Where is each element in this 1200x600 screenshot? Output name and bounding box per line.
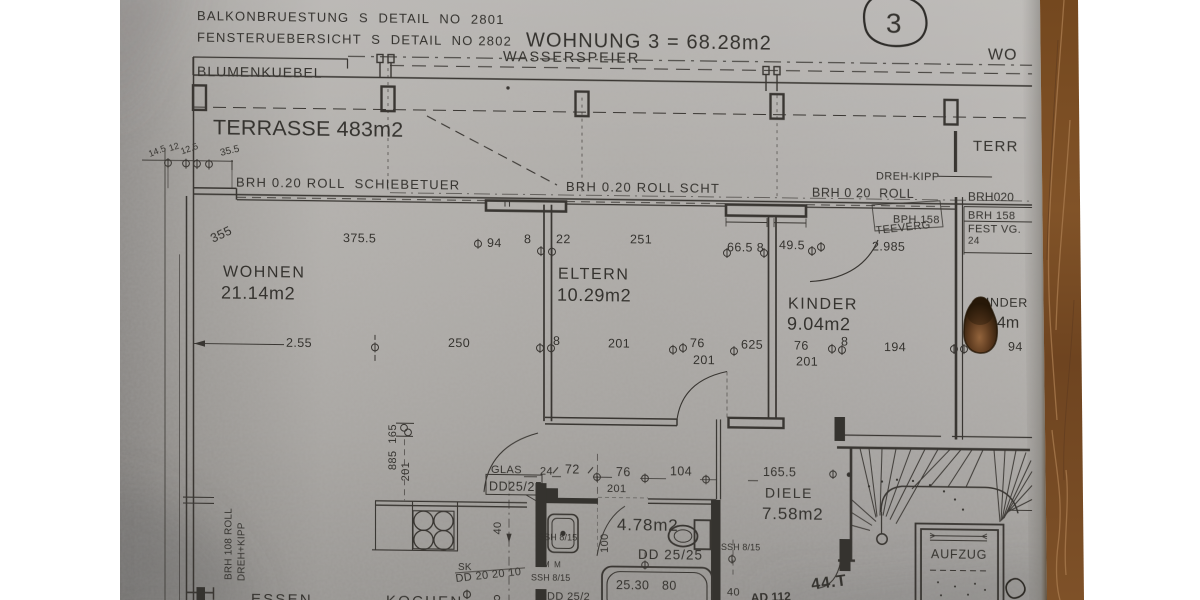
svg-text:BRH 158: BRH 158 xyxy=(968,210,1015,223)
svg-text:21.14m2: 21.14m2 xyxy=(221,282,295,303)
svg-text:BRH020: BRH020 xyxy=(968,190,1014,205)
svg-text:KOCHEN: KOCHEN xyxy=(386,593,463,600)
svg-text:375.5: 375.5 xyxy=(343,231,376,245)
svg-text:TERR: TERR xyxy=(973,138,1019,156)
svg-text:76: 76 xyxy=(690,336,705,350)
svg-text:DIELE: DIELE xyxy=(765,485,813,502)
svg-text:25.30: 25.30 xyxy=(616,578,649,592)
svg-text:BRH 0.20 ROLL SCHT: BRH 0.20 ROLL SCHT xyxy=(566,179,720,196)
svg-text:BRH 0.20 ROLL SCHIEBETUER: BRH 0.20 ROLL SCHIEBETUER xyxy=(236,175,460,193)
svg-text:100: 100 xyxy=(599,533,611,553)
svg-text:FEST VG.: FEST VG. xyxy=(968,223,1021,236)
svg-text:ELTERN: ELTERN xyxy=(558,266,630,284)
svg-text:40: 40 xyxy=(727,587,740,599)
svg-text:2.55: 2.55 xyxy=(286,336,312,350)
svg-text:DREH+KIPP: DREH+KIPP xyxy=(237,522,248,581)
svg-text:DD 25/2: DD 25/2 xyxy=(547,591,590,600)
svg-text:80: 80 xyxy=(662,579,677,593)
svg-text:49.5: 49.5 xyxy=(779,238,805,252)
svg-text:SSH 8/15: SSH 8/15 xyxy=(531,572,570,583)
svg-text:76: 76 xyxy=(794,338,809,352)
svg-text:BRH 108 ROLL: BRH 108 ROLL xyxy=(224,508,235,580)
svg-text:194: 194 xyxy=(884,340,906,354)
svg-text:94: 94 xyxy=(1008,340,1023,354)
svg-text:66.5 8: 66.5 8 xyxy=(727,240,764,254)
svg-text:BLUMENKUEBEL: BLUMENKUEBEL xyxy=(197,63,323,81)
svg-text:40: 40 xyxy=(492,521,504,534)
svg-text:201: 201 xyxy=(607,483,627,495)
svg-text:9.04m2: 9.04m2 xyxy=(787,314,851,335)
svg-text:SSH 8/15: SSH 8/15 xyxy=(538,532,577,543)
svg-text:104: 104 xyxy=(670,464,692,478)
svg-text:24: 24 xyxy=(540,466,553,478)
svg-text:M M: M M xyxy=(543,560,561,569)
svg-text:201: 201 xyxy=(796,354,818,368)
svg-text:WO: WO xyxy=(988,46,1018,63)
svg-text:TERRASSE 483m2: TERRASSE 483m2 xyxy=(213,115,403,141)
svg-text:4m: 4m xyxy=(997,315,1019,332)
svg-text:WOHNEN: WOHNEN xyxy=(223,264,305,282)
svg-text:250: 250 xyxy=(448,336,470,350)
svg-text:94: 94 xyxy=(487,236,502,250)
svg-text:76: 76 xyxy=(616,465,631,479)
svg-text:201: 201 xyxy=(400,462,412,482)
svg-text:DD25/25: DD25/25 xyxy=(489,479,543,494)
svg-text:ESSEN: ESSEN xyxy=(251,591,313,600)
svg-text:251: 251 xyxy=(630,232,652,246)
svg-text:24: 24 xyxy=(968,236,980,247)
svg-text:AD 112: AD 112 xyxy=(750,589,791,600)
svg-text:3: 3 xyxy=(886,8,902,39)
svg-text:DD 25/25: DD 25/25 xyxy=(638,547,703,563)
svg-text:10.29m2: 10.29m2 xyxy=(557,285,631,306)
svg-text:DREH-KIPP: DREH-KIPP xyxy=(876,171,939,184)
svg-text:AUFZUG: AUFZUG xyxy=(931,547,987,562)
svg-text:201: 201 xyxy=(608,336,630,350)
svg-text:22: 22 xyxy=(556,232,571,246)
svg-text:8: 8 xyxy=(524,232,531,246)
svg-text:7.58m2: 7.58m2 xyxy=(762,504,824,524)
svg-text:201: 201 xyxy=(693,353,715,367)
svg-text:885 165: 885 165 xyxy=(387,424,399,470)
svg-text:BRH 0 20 ROLL: BRH 0 20 ROLL xyxy=(812,185,914,200)
svg-text:625: 625 xyxy=(741,338,763,352)
svg-text:SSH 8/15: SSH 8/15 xyxy=(721,542,760,553)
svg-text:72: 72 xyxy=(565,462,580,476)
svg-text:165.5: 165.5 xyxy=(763,465,796,479)
svg-text:KINDER: KINDER xyxy=(788,296,858,314)
